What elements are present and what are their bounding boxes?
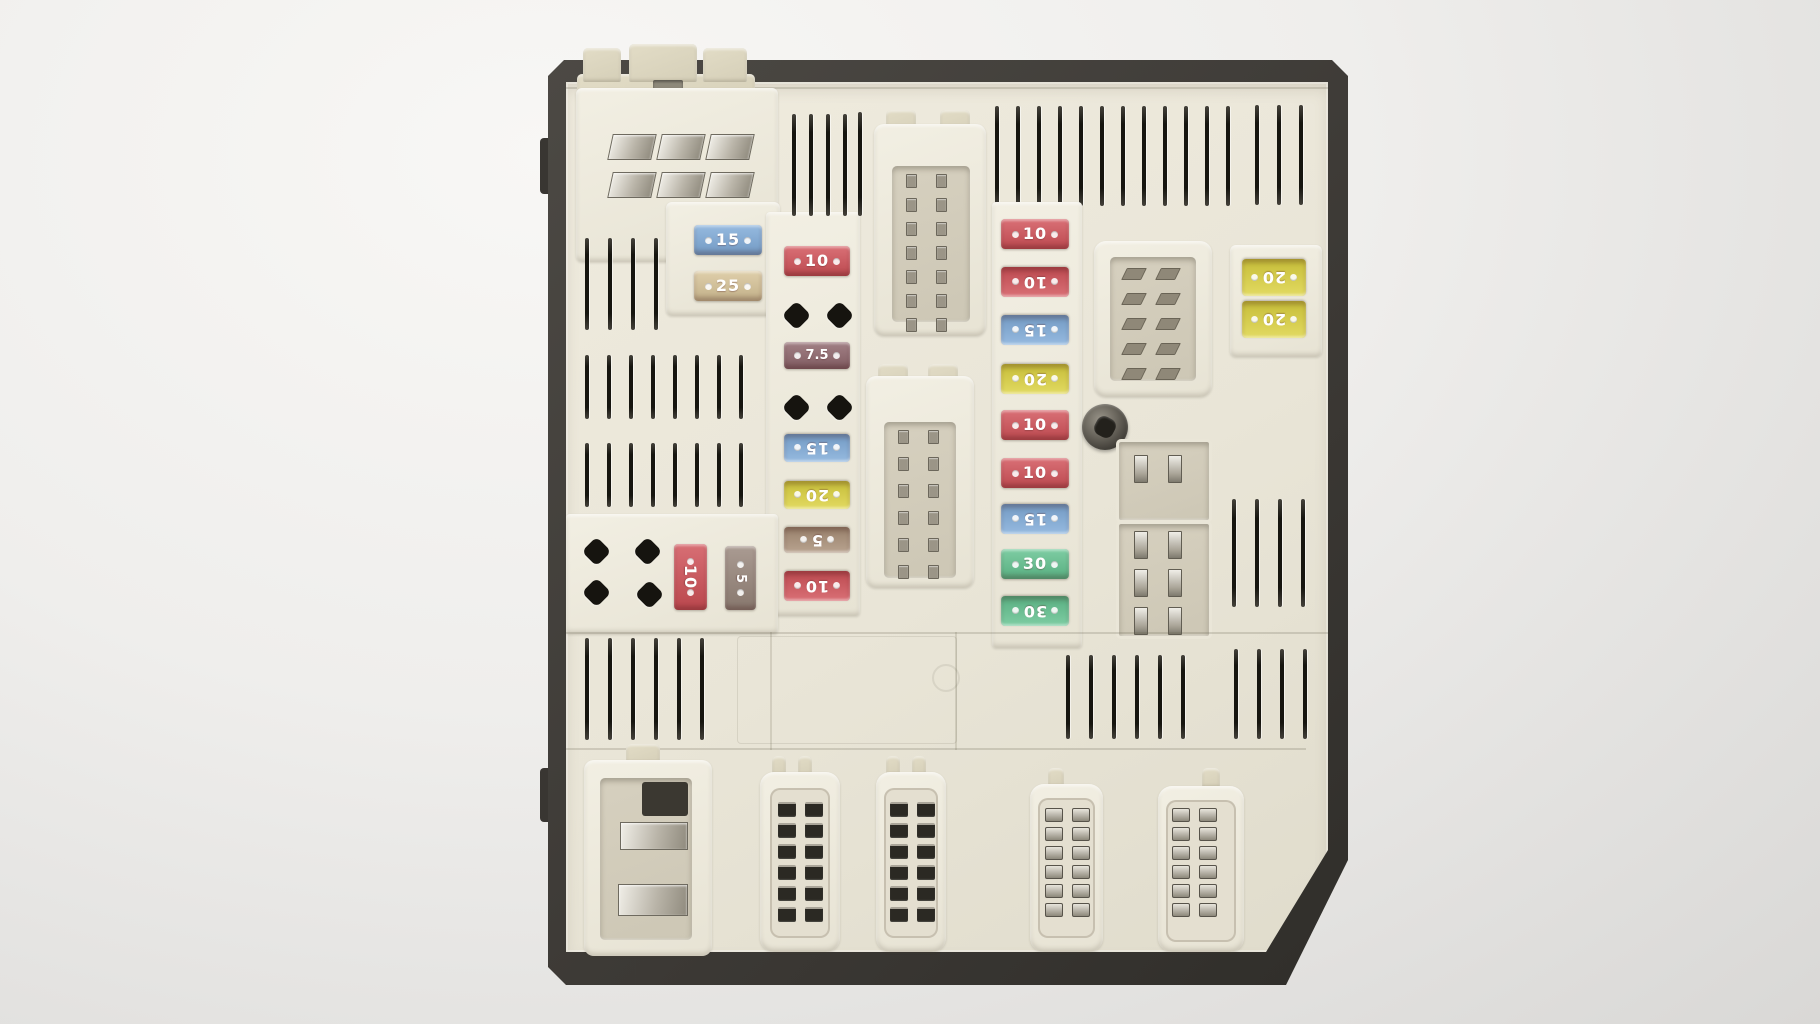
fuse-10a: 10 xyxy=(1001,267,1069,297)
fuse-15a: 15 xyxy=(1001,504,1069,534)
fuse-amp-label: 10 xyxy=(1023,465,1047,481)
fuse-amp-label: 10 xyxy=(682,565,698,589)
fuse-amp-label: 10 xyxy=(1023,226,1047,242)
fuse-terminal-dot xyxy=(1251,274,1258,281)
fuse-amp-label: 30 xyxy=(1023,556,1047,572)
fuse-10a: 10 xyxy=(784,571,850,601)
fuse-terminal-dot xyxy=(1012,327,1019,334)
fuse-terminal-dot xyxy=(737,589,744,596)
fuse-terminal-dot xyxy=(833,258,840,265)
fuse-amp-label: 15 xyxy=(716,232,740,248)
fuse-terminal-dot xyxy=(1051,279,1058,286)
fuse-5a: 5 xyxy=(784,527,850,553)
pillar-pin-slots xyxy=(928,430,939,579)
fuse-terminal-dot xyxy=(737,561,744,568)
fuse-terminal-dot xyxy=(744,237,751,244)
vent-slots xyxy=(585,443,743,507)
fuse-terminal-dot xyxy=(833,445,840,452)
fuse-amp-label: 15 xyxy=(805,440,829,456)
fuse-terminal-dot xyxy=(1051,376,1058,383)
fuse-terminal-dot xyxy=(1051,516,1058,523)
fuse-20a: 20 xyxy=(784,481,850,509)
fuse-amp-label: 20 xyxy=(1023,371,1047,387)
fuse-terminal-dot xyxy=(1012,608,1019,615)
connector-pin-slots xyxy=(1124,268,1144,380)
fuse-terminal-dot xyxy=(1290,274,1297,281)
fuse-amp-label: 30 xyxy=(1023,603,1047,619)
relay-blades xyxy=(1134,455,1180,483)
vent-slots xyxy=(1066,655,1185,739)
pillar-pin-slots xyxy=(898,430,909,579)
mount-tab-tooth xyxy=(703,48,747,82)
fuse-terminal-dot xyxy=(833,492,840,499)
connector-pillar-1-cavity xyxy=(892,166,970,322)
fuse-terminal-dot xyxy=(705,283,712,290)
fuse-10a: 10 xyxy=(1001,410,1069,440)
fuse-25a: 25 xyxy=(694,271,762,301)
vent-slots xyxy=(585,238,658,330)
panel-emboss-circle xyxy=(932,664,960,692)
fuse-terminal-dot xyxy=(1012,279,1019,286)
connector-pins xyxy=(1172,808,1217,917)
fuse-terminal-dot xyxy=(794,445,801,452)
fuse-amp-label: 20 xyxy=(1262,312,1286,328)
fuse-terminal-dot xyxy=(1012,561,1019,568)
fuse-amp-label: 25 xyxy=(716,278,740,294)
fuse-terminal-dot xyxy=(1012,516,1019,523)
fuse-10a: 10 xyxy=(1001,458,1069,488)
fuse-10a: 10 xyxy=(784,246,850,276)
vent-slots xyxy=(585,638,704,740)
interior-seam xyxy=(566,748,1306,750)
fuse-terminal-dot xyxy=(687,589,694,596)
fuse-30a: 30 xyxy=(1001,596,1069,626)
fuse-terminal-dot xyxy=(1051,470,1058,477)
fuse-amp-label: 15 xyxy=(1023,322,1047,338)
fuse-amp-label: 10 xyxy=(1023,274,1047,290)
vent-slots xyxy=(1232,499,1305,607)
vent-slots xyxy=(585,355,743,419)
contact-pad xyxy=(705,172,755,198)
fuse-amp-label: 15 xyxy=(1023,511,1047,527)
fuse-7-5a: 7.5 xyxy=(784,342,850,369)
fuse-10a-sideways: 10 xyxy=(674,544,707,610)
fuse-30a: 30 xyxy=(1001,549,1069,579)
fuse-amp-label: 5 xyxy=(734,573,747,582)
fuse-amp-label: 10 xyxy=(805,578,829,594)
fuse-terminal-dot xyxy=(794,492,801,499)
contact-pad xyxy=(656,172,706,198)
fuse-amp-label: 7.5 xyxy=(805,349,828,362)
fuse-15a: 15 xyxy=(694,225,762,255)
fuse-amp-label: 5 xyxy=(811,532,823,548)
blade-terminal xyxy=(620,822,688,850)
contact-pad xyxy=(607,172,657,198)
connector-cavity-hole xyxy=(642,782,688,816)
fuse-amp-label: 10 xyxy=(1023,417,1047,433)
fuse-15a: 15 xyxy=(1001,315,1069,345)
fuse-terminal-dot xyxy=(744,283,751,290)
fuse-terminal-dot xyxy=(1051,327,1058,334)
fuse-box-photo: 15 25 10 7.5 15 20 5 10 10 5 xyxy=(0,0,1820,1024)
fuse-terminal-dot xyxy=(705,237,712,244)
vent-slots xyxy=(1255,105,1303,205)
fuse-terminal-dot xyxy=(1290,316,1297,323)
interior-seam xyxy=(566,632,1328,634)
connector-pins xyxy=(890,802,935,922)
fuse-terminal-dot xyxy=(1012,376,1019,383)
fuse-terminal-dot xyxy=(794,258,801,265)
connector-pins xyxy=(778,802,823,922)
fuse-terminal-dot xyxy=(800,537,807,544)
pillar-pin-slots xyxy=(936,174,947,332)
contact-pad xyxy=(607,134,657,160)
contact-pad xyxy=(705,134,755,160)
fuse-5a-sideways: 5 xyxy=(725,546,756,610)
fuse-20a: 20 xyxy=(1001,364,1069,394)
fuse-amp-label: 20 xyxy=(805,487,829,503)
fuse-terminal-dot xyxy=(1251,316,1258,323)
fuse-terminal-dot xyxy=(1051,422,1058,429)
fuse-terminal-dot xyxy=(827,537,834,544)
vent-slots xyxy=(792,114,847,216)
connector-pin-slots xyxy=(1158,268,1178,380)
blade-terminal xyxy=(618,884,688,916)
fuse-terminal-dot xyxy=(1012,422,1019,429)
mount-tab-tooth xyxy=(629,44,697,82)
vent-slots xyxy=(858,112,862,216)
fuse-terminal-dot xyxy=(794,583,801,590)
panel-emboss xyxy=(737,636,957,744)
connector-tab xyxy=(1202,768,1220,788)
mount-tab-tooth xyxy=(583,48,621,82)
vent-slots xyxy=(995,106,1230,206)
contact-pad xyxy=(656,134,706,160)
fuse-terminal-dot xyxy=(1051,608,1058,615)
relay-blades xyxy=(1134,531,1180,635)
fuse-amp-label: 20 xyxy=(1262,270,1286,286)
connector-pins xyxy=(1045,808,1090,917)
fuse-terminal-dot xyxy=(1012,470,1019,477)
connector-pillar-2-cavity xyxy=(884,422,956,578)
vent-slots xyxy=(1234,649,1307,739)
fuse-20a: 20 xyxy=(1242,259,1306,296)
fuse-terminal-dot xyxy=(1051,231,1058,238)
fuse-10a: 10 xyxy=(1001,219,1069,249)
fuse-terminal-dot xyxy=(1051,561,1058,568)
fuse-20a: 20 xyxy=(1242,301,1306,338)
fuse-terminal-dot xyxy=(833,583,840,590)
fuse-amp-label: 10 xyxy=(805,253,829,269)
fuse-15a: 15 xyxy=(784,434,850,462)
pillar-pin-slots xyxy=(906,174,917,332)
fuse-terminal-dot xyxy=(1012,231,1019,238)
fuse-terminal-dot xyxy=(794,352,801,359)
fuse-terminal-dot xyxy=(833,352,840,359)
